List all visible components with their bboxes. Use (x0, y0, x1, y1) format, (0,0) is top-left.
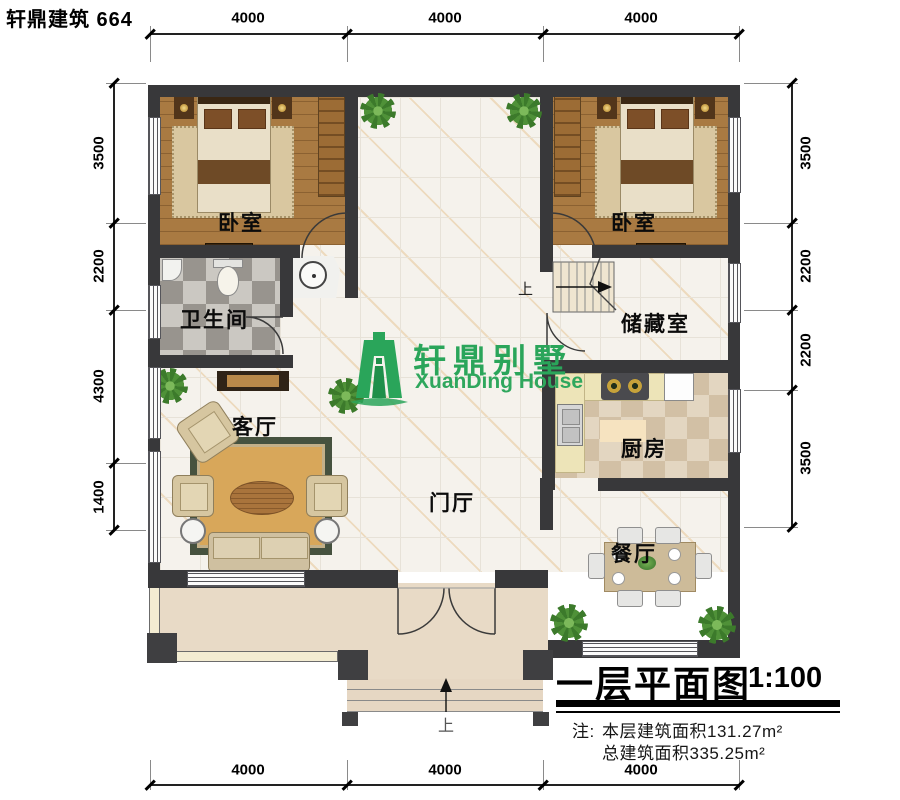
bed-left (197, 95, 271, 213)
room-label-bedroom-left: 卧室 (218, 207, 264, 237)
stove (601, 372, 649, 400)
entry-steps (347, 679, 543, 712)
floor-plan-canvas: 轩鼎建筑 664 (0, 0, 900, 800)
porch-pier-left (338, 650, 368, 680)
washbasin (299, 261, 327, 289)
wall-bedroom-left (345, 85, 358, 258)
dim-line-right (791, 83, 793, 527)
room-label-storage: 储藏室 (621, 308, 690, 338)
dim-bottom-3: 4000 (624, 762, 657, 779)
armchair-left (172, 475, 214, 517)
wall-porch-left (368, 570, 398, 588)
window (149, 452, 160, 562)
dim-left-1: 3500 (91, 136, 108, 169)
plant (698, 606, 736, 644)
terrace-rail-left (149, 585, 160, 635)
dim-right-3: 2200 (798, 333, 815, 366)
logo-icon (348, 326, 410, 408)
porch-pier-right (523, 650, 553, 680)
room-label-kitchen: 厨房 (621, 433, 667, 463)
window (729, 264, 740, 322)
tv-cabinet (217, 371, 289, 391)
dim-top-2: 4000 (428, 10, 461, 27)
step-pier-right (533, 712, 549, 726)
wall-bedroom-left-bottom (148, 245, 300, 258)
dim-left-4: 1400 (91, 480, 108, 513)
fridge (664, 373, 694, 401)
note-prefix: 注: (572, 717, 595, 742)
dim-right-1: 3500 (798, 136, 815, 169)
terrace-pier (147, 633, 177, 663)
title-underline-thin (556, 711, 840, 713)
room-label-bathroom: 卫生间 (180, 304, 249, 334)
sofa (208, 532, 310, 572)
window (729, 390, 740, 452)
dim-bottom-2: 4000 (428, 762, 461, 779)
window (188, 572, 304, 586)
plate (668, 572, 681, 585)
nightstand (695, 97, 715, 119)
nightstand (597, 97, 617, 119)
dim-top-1: 4000 (231, 10, 264, 27)
brand-title: 轩鼎建筑 664 (6, 3, 133, 32)
toilet (217, 266, 239, 296)
wall-dining-stub (540, 478, 553, 530)
dining-chair (617, 590, 643, 607)
side-table (180, 518, 206, 544)
dim-bottom-1: 4000 (231, 762, 264, 779)
armchair-right (306, 475, 348, 517)
plate (612, 572, 625, 585)
dining-chair (655, 527, 681, 544)
kitchen-sink (557, 404, 583, 446)
room-label-dining: 餐厅 (611, 538, 657, 568)
side-table (314, 518, 340, 544)
room-label-bedroom-right: 卧室 (611, 207, 657, 237)
window (149, 118, 160, 194)
nightstand (272, 97, 292, 119)
plan-scale: 1:100 (748, 662, 822, 695)
plant (506, 93, 542, 129)
wall-storage-stub (540, 258, 553, 272)
dim-line-top (150, 33, 740, 35)
wall-top (148, 85, 740, 97)
coffee-table (230, 481, 294, 515)
dim-right-4: 3500 (798, 441, 815, 474)
entry-up-label: 上 (438, 712, 454, 736)
wall-bathroom-bottom (148, 355, 293, 368)
plate (668, 548, 681, 561)
terrace-rail-bottom (160, 651, 338, 662)
dim-right-2: 2200 (798, 249, 815, 282)
dim-top-3: 4000 (624, 10, 657, 27)
wall-kitchen-bottom (598, 478, 740, 491)
logo-text-en: XuanDing House (415, 370, 583, 394)
title-underline-thick (556, 700, 840, 707)
bed-right (620, 95, 694, 213)
wall-porch-right (495, 570, 548, 588)
dim-left-3: 4300 (91, 369, 108, 402)
wall-bedroom-right-bottom (592, 245, 740, 258)
wall-bathroom-right (280, 258, 293, 317)
window (729, 118, 740, 192)
stairs-up-label: 上 (518, 278, 533, 299)
dining-chair (588, 553, 605, 579)
dim-line-bottom (150, 784, 740, 786)
plant (360, 93, 396, 129)
window (149, 368, 160, 438)
room-label-living: 客厅 (232, 411, 278, 441)
dining-chair (655, 590, 681, 607)
window (149, 286, 160, 338)
step-pier-left (342, 712, 358, 726)
room-label-foyer: 门厅 (429, 487, 475, 517)
porch-floor (368, 583, 548, 679)
dining-chair (695, 553, 712, 579)
dim-left-2: 2200 (91, 249, 108, 282)
note-line-2: 总建筑面积335.25m² (602, 739, 765, 764)
wardrobe-left (318, 95, 345, 197)
nightstand (174, 97, 194, 119)
terrace-floor (149, 588, 390, 651)
wall-basin-stub (345, 258, 358, 298)
wardrobe-right (554, 95, 581, 197)
plant (550, 604, 588, 642)
